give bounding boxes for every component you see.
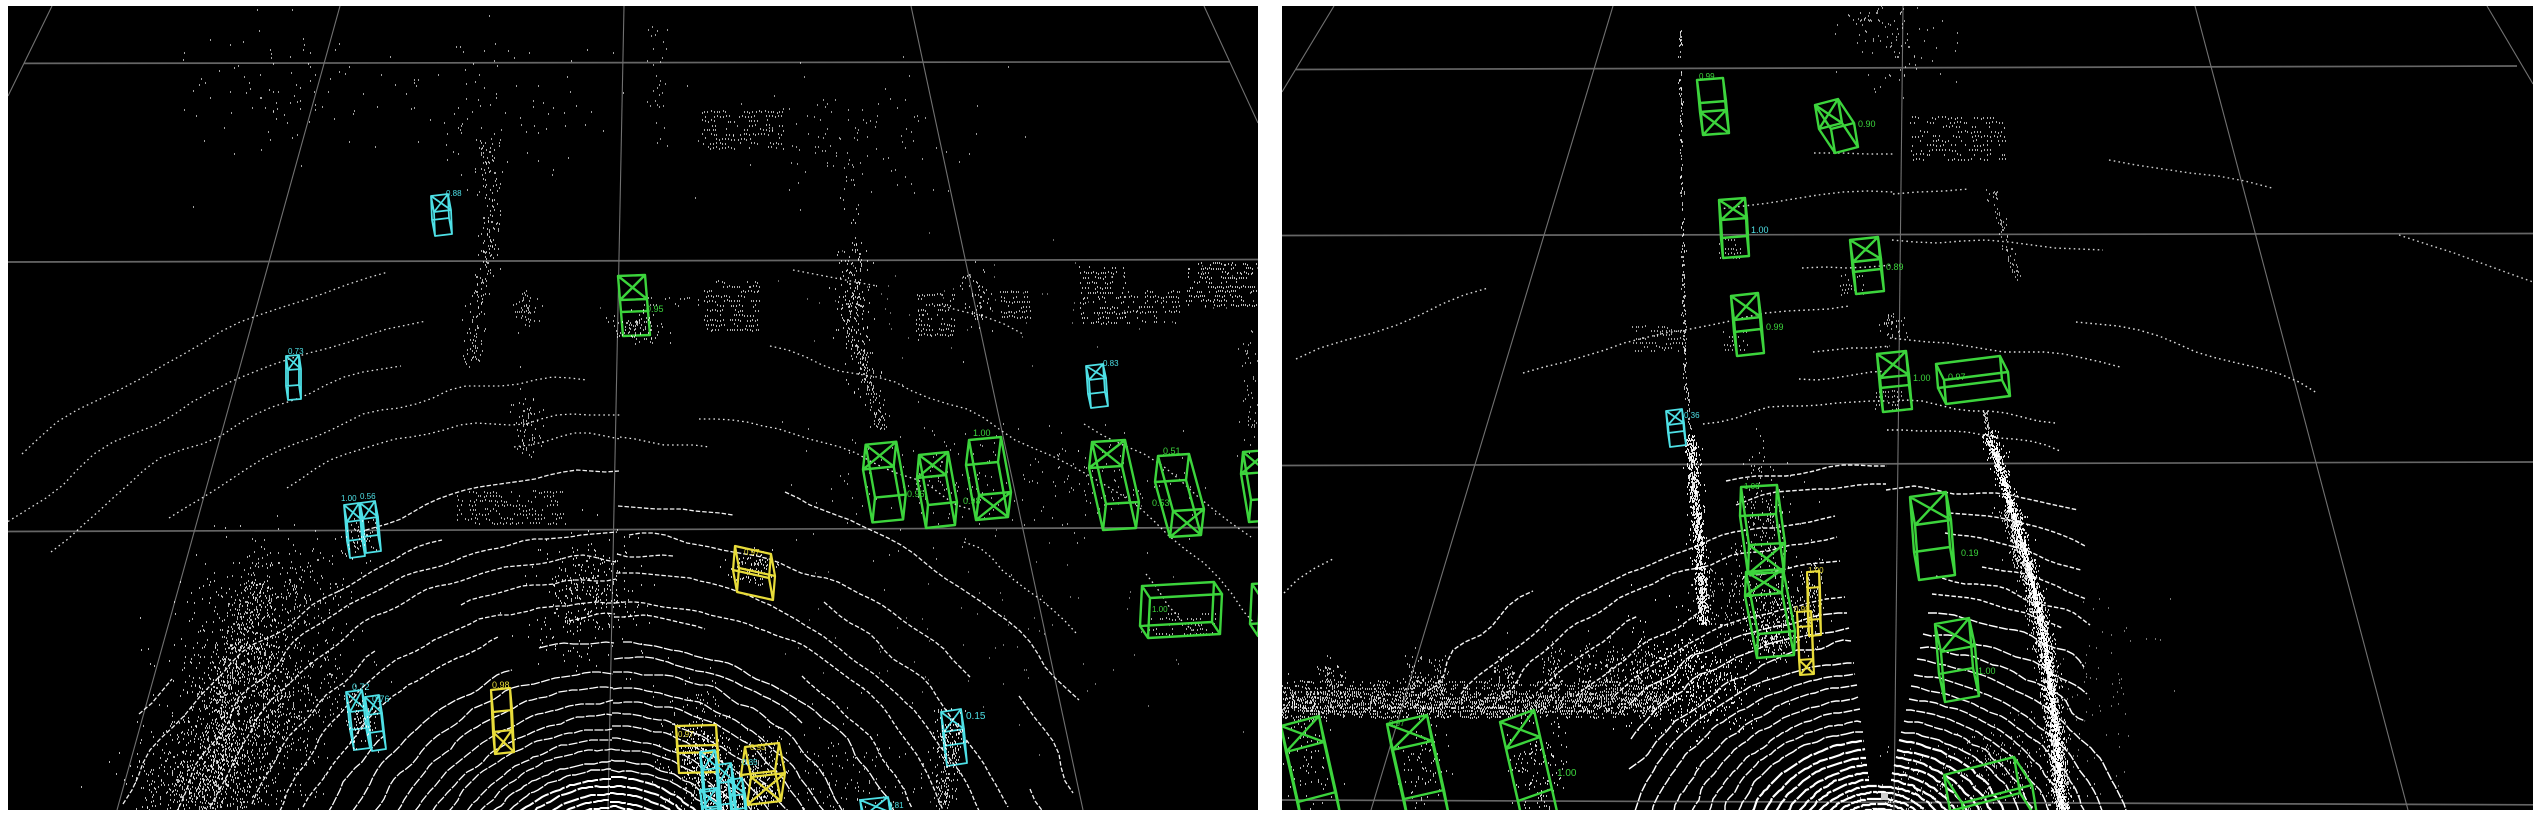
svg-text:1.00: 1.00 bbox=[1744, 482, 1760, 491]
svg-text:1.00: 1.00 bbox=[1978, 666, 1996, 676]
svg-text:1.00: 1.00 bbox=[1913, 373, 1931, 383]
svg-text:0.36: 0.36 bbox=[1684, 411, 1700, 420]
svg-text:0.89: 0.89 bbox=[1886, 262, 1904, 272]
svg-text:1.00: 1.00 bbox=[1557, 768, 1577, 779]
svg-text:0.97: 0.97 bbox=[1948, 372, 1966, 382]
svg-text:1.00: 1.00 bbox=[1751, 225, 1769, 235]
svg-text:0.19: 0.19 bbox=[1961, 548, 1979, 558]
svg-text:0.99: 0.99 bbox=[1699, 72, 1715, 81]
svg-text:0.97: 0.97 bbox=[1389, 719, 1405, 728]
svg-text:0.98: 0.98 bbox=[1794, 605, 1810, 614]
svg-text:1.00: 1.00 bbox=[1808, 566, 1824, 575]
svg-text:0.90: 0.90 bbox=[1858, 119, 1876, 129]
svg-text:0.99: 0.99 bbox=[1766, 322, 1784, 332]
